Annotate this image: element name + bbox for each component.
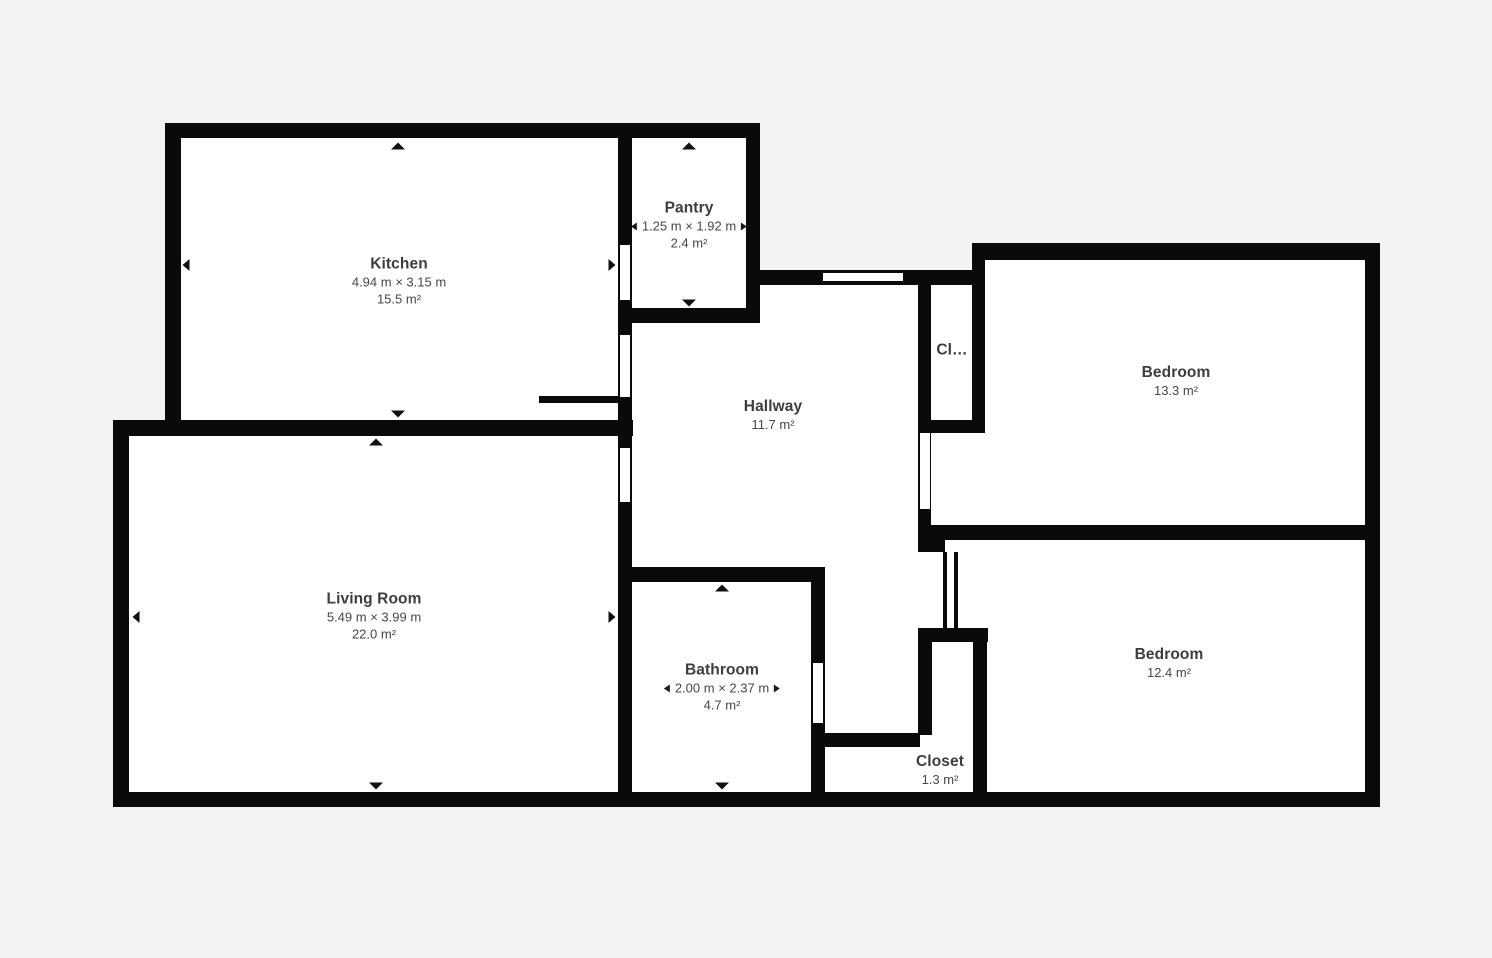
- room-name: Closet: [916, 752, 964, 771]
- door-opening-hallway-bedroom-1: [920, 433, 930, 509]
- room-label-kitchen: Kitchen4.94 m × 3.15 m15.5 m²: [352, 255, 446, 308]
- room-name: Kitchen: [352, 255, 446, 274]
- room-area: 15.5 m²: [352, 291, 446, 308]
- right-dimension-arrow-icon: [609, 259, 616, 271]
- door-opening-hallway-bathroom: [813, 663, 823, 723]
- wall: [972, 243, 1380, 260]
- wall: [823, 733, 920, 747]
- room-area: 11.7 m²: [744, 416, 802, 433]
- wall: [918, 525, 945, 552]
- wall: [618, 308, 760, 323]
- room-label-bedroom-2: Bedroom12.4 m²: [1135, 645, 1204, 681]
- down-dimension-arrow-icon: [369, 783, 383, 790]
- door-opening-living-room-hallway: [620, 448, 630, 502]
- room-dimensions-row: 2.00 m × 2.37 m: [664, 680, 780, 697]
- door-leaf: [954, 552, 958, 628]
- wall: [165, 123, 181, 423]
- room-dimensions: 1.25 m × 1.92 m: [642, 218, 736, 235]
- left-dimension-arrow-icon: [664, 684, 670, 692]
- room-dimensions-row: 4.94 m × 3.15 m: [352, 274, 446, 291]
- left-dimension-arrow-icon: [133, 611, 140, 623]
- down-dimension-arrow-icon: [682, 300, 696, 307]
- wall: [918, 628, 932, 735]
- room-name: Hallway: [744, 397, 802, 416]
- wall: [933, 525, 1367, 540]
- wall: [973, 628, 987, 793]
- door-opening-kitchen-pantry: [620, 245, 630, 300]
- wall: [918, 420, 985, 433]
- down-dimension-arrow-icon: [391, 411, 405, 418]
- room-dimensions-row: 5.49 m × 3.99 m: [327, 609, 422, 626]
- room-area: 4.7 m²: [664, 697, 780, 714]
- door-leaf: [943, 552, 947, 628]
- left-dimension-arrow-icon: [183, 259, 190, 271]
- room-label-living-room: Living Room5.49 m × 3.99 m22.0 m²: [327, 590, 422, 643]
- room-area: 12.4 m²: [1135, 664, 1204, 681]
- wall: [113, 792, 1380, 807]
- room-label-bathroom: Bathroom2.00 m × 2.37 m4.7 m²: [664, 661, 780, 714]
- up-dimension-arrow-icon: [715, 585, 729, 592]
- room-name: Pantry: [631, 199, 747, 218]
- room-name: Bedroom: [1135, 645, 1204, 664]
- wall: [746, 123, 760, 323]
- room-name: Bedroom: [1142, 363, 1211, 382]
- room-dimensions: 4.94 m × 3.15 m: [352, 274, 446, 291]
- room-dimensions: 5.49 m × 3.99 m: [327, 609, 421, 626]
- up-dimension-arrow-icon: [682, 143, 696, 150]
- down-dimension-arrow-icon: [715, 783, 729, 790]
- room-dimensions-row: 1.25 m × 1.92 m: [631, 218, 747, 235]
- up-dimension-arrow-icon: [369, 439, 383, 446]
- room-area: 13.3 m²: [1142, 382, 1211, 399]
- room-label-closet-upper: Cl…: [936, 341, 967, 360]
- room-area: 22.0 m²: [327, 626, 422, 643]
- window-opening-hallway-exterior: [823, 273, 903, 281]
- up-dimension-arrow-icon: [391, 143, 405, 150]
- room-name: Cl…: [936, 341, 967, 360]
- wall: [918, 285, 931, 552]
- wall: [165, 123, 760, 138]
- wall: [113, 420, 129, 807]
- right-dimension-arrow-icon: [609, 611, 616, 623]
- wall: [618, 567, 825, 582]
- room-name: Bathroom: [664, 661, 780, 680]
- room-label-bedroom-1: Bedroom13.3 m²: [1142, 363, 1211, 399]
- room-label-closet-lower: Closet1.3 m²: [916, 752, 964, 788]
- room-dimensions: 2.00 m × 2.37 m: [675, 680, 769, 697]
- wall: [972, 243, 985, 433]
- right-dimension-arrow-icon: [774, 684, 780, 692]
- left-dimension-arrow-icon: [631, 222, 637, 230]
- room-label-hallway: Hallway11.7 m²: [744, 397, 802, 433]
- wall: [1365, 243, 1380, 807]
- wall: [539, 396, 619, 403]
- right-dimension-arrow-icon: [741, 222, 747, 230]
- wall: [113, 420, 633, 436]
- door-opening-kitchen-hallway: [620, 335, 630, 397]
- room-name: Living Room: [327, 590, 422, 609]
- floor-plan: Kitchen4.94 m × 3.15 m15.5 m²Pantry1.25 …: [0, 0, 1492, 958]
- room-area: 2.4 m²: [631, 235, 747, 252]
- room-label-pantry: Pantry1.25 m × 1.92 m2.4 m²: [631, 199, 747, 252]
- room-area: 1.3 m²: [916, 771, 964, 788]
